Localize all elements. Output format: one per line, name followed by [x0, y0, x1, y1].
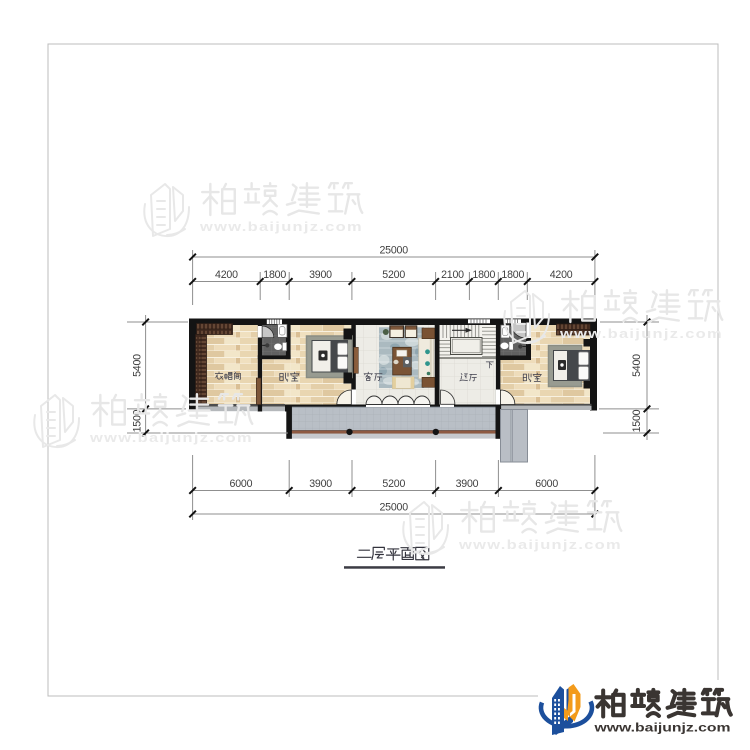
- svg-text:4200: 4200: [550, 269, 573, 281]
- svg-text:3900: 3900: [456, 478, 479, 490]
- svg-text:2100: 2100: [441, 269, 464, 281]
- svg-text:5400: 5400: [132, 354, 144, 377]
- svg-text:1800: 1800: [501, 269, 524, 281]
- svg-text:1800: 1800: [472, 269, 495, 281]
- svg-text:4200: 4200: [215, 269, 238, 281]
- svg-text:6000: 6000: [535, 478, 558, 490]
- svg-text:5400: 5400: [631, 354, 643, 377]
- svg-text:5200: 5200: [382, 269, 405, 281]
- svg-text:1800: 1800: [263, 269, 286, 281]
- svg-text:1500: 1500: [631, 409, 643, 432]
- svg-text:25000: 25000: [379, 245, 408, 257]
- svg-text:3900: 3900: [309, 478, 332, 490]
- svg-text:25000: 25000: [379, 502, 408, 514]
- svg-text:www.baijunjz.com: www.baijunjz.com: [593, 721, 730, 735]
- svg-text:3900: 3900: [309, 269, 332, 281]
- svg-text:5200: 5200: [382, 478, 405, 490]
- svg-text:6000: 6000: [230, 478, 253, 490]
